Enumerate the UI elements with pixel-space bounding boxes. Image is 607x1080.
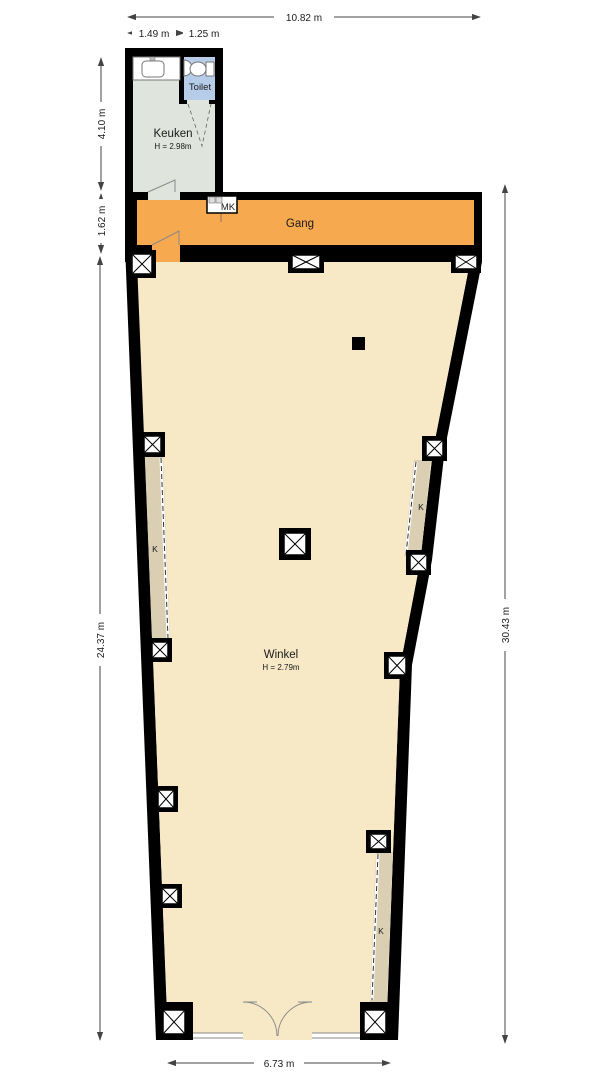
keuken-door-opening (148, 192, 180, 200)
dim-left-mid: 1.62 m (97, 206, 108, 237)
gang-label: Gang (286, 218, 314, 230)
dim-left-main: 24.37 m (96, 622, 107, 658)
kitchen-sink-icon (142, 61, 164, 77)
keuken-height-label: H = 2.98m (154, 142, 191, 151)
winkel-label: Winkel (264, 649, 299, 661)
room-winkel-floor (137, 262, 470, 1033)
floorplan-drawing: MK K K K (0, 0, 607, 1080)
toilet-tank-icon (206, 62, 214, 76)
dim-left-top: 4.10 m (97, 109, 108, 140)
closet-label: K (378, 926, 384, 936)
toilet-door-opening (187, 100, 209, 104)
gang-top-wall (215, 192, 482, 200)
gang-door-opening (152, 245, 180, 262)
floorplan-canvas: MK K K K (0, 0, 607, 1080)
meter-icon (209, 197, 215, 203)
meter-closet-label: MK (221, 202, 236, 213)
closet-label: K (418, 502, 424, 512)
toilet-bowl-icon (190, 62, 206, 76)
dim-top-seg1: 1.49 m (139, 29, 170, 40)
dim-bottom: 6.73 m (264, 1059, 295, 1070)
winkel-height-label: H = 2.79m (262, 663, 299, 672)
solid-column-symbol (352, 337, 365, 350)
toilet-label: Toilet (189, 82, 212, 93)
keuken-label: Keuken (153, 128, 192, 140)
dim-right-main: 30.43 m (501, 607, 512, 643)
kitchen-tap-icon (150, 57, 155, 61)
entrance-opening (243, 1031, 312, 1040)
closet-label: K (152, 544, 158, 554)
dim-top-total: 10.82 m (286, 13, 322, 24)
dim-top-seg2: 1.25 m (189, 29, 220, 40)
